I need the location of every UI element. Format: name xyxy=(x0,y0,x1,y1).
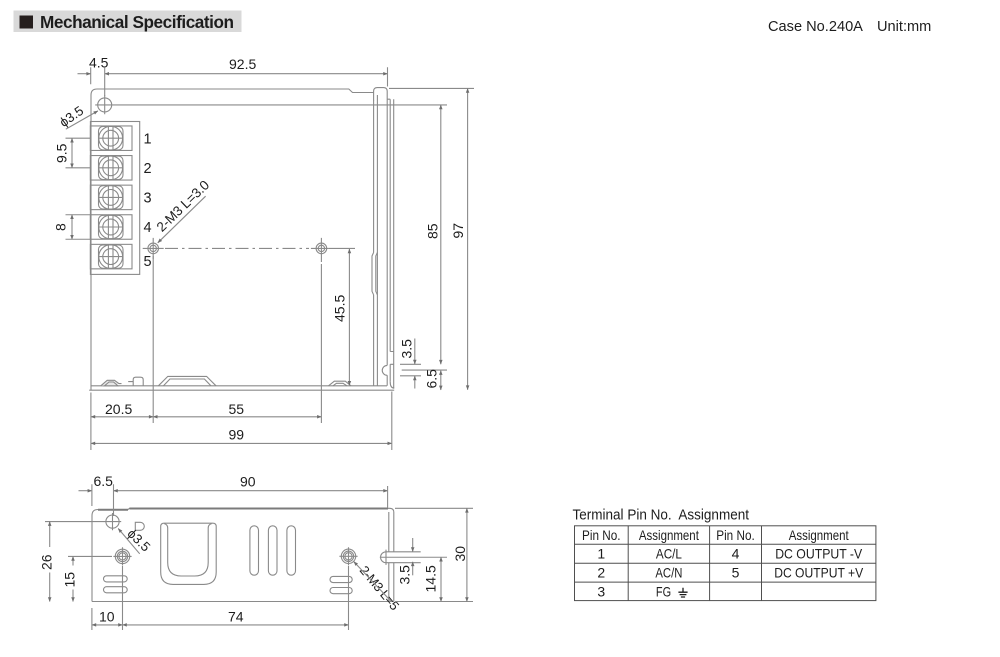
svg-text:14.5: 14.5 xyxy=(423,565,439,592)
svg-text:97: 97 xyxy=(450,223,466,239)
svg-text:26: 26 xyxy=(39,554,55,570)
svg-text:15: 15 xyxy=(61,572,77,588)
svg-text:FG: FG xyxy=(656,584,671,600)
svg-text:9.5: 9.5 xyxy=(54,143,70,163)
svg-text:1: 1 xyxy=(597,546,605,562)
svg-text:2-M3 L=5: 2-M3 L=5 xyxy=(357,563,403,613)
svg-text:45.5: 45.5 xyxy=(332,295,348,322)
svg-text:2: 2 xyxy=(144,161,152,177)
svg-text:1: 1 xyxy=(144,132,152,148)
svg-text:4: 4 xyxy=(732,546,740,562)
svg-text:3: 3 xyxy=(144,191,152,207)
svg-text:Pin No.: Pin No. xyxy=(582,527,621,543)
svg-text:DC OUTPUT +V: DC OUTPUT +V xyxy=(774,565,864,581)
svg-text:3: 3 xyxy=(597,584,605,600)
svg-text:Terminal Pin No. Assignment: Terminal Pin No. Assignment xyxy=(573,508,750,524)
svg-text:3.5: 3.5 xyxy=(399,339,415,359)
svg-text:3.5: 3.5 xyxy=(397,565,413,585)
svg-text:55: 55 xyxy=(229,401,245,417)
svg-text:AC/N: AC/N xyxy=(655,565,682,581)
svg-text:Assignment: Assignment xyxy=(789,527,849,543)
svg-text:5: 5 xyxy=(732,565,740,581)
svg-text:10: 10 xyxy=(99,609,115,625)
svg-text:4: 4 xyxy=(144,220,152,236)
svg-text:8: 8 xyxy=(53,223,69,231)
svg-text:2-M3 L=3.0: 2-M3 L=3.0 xyxy=(154,178,212,235)
svg-text:Unit:mm: Unit:mm xyxy=(877,19,931,35)
svg-text:DC OUTPUT -V: DC OUTPUT -V xyxy=(775,546,863,562)
svg-text:20.5: 20.5 xyxy=(105,401,132,417)
svg-text:Pin No.: Pin No. xyxy=(716,527,755,543)
svg-text:AC/L: AC/L xyxy=(656,546,682,562)
svg-text:2: 2 xyxy=(597,565,605,581)
svg-text:6.5: 6.5 xyxy=(94,473,114,489)
svg-text:74: 74 xyxy=(228,609,244,625)
svg-text:Assignment: Assignment xyxy=(639,527,699,543)
svg-text:30: 30 xyxy=(452,546,468,562)
svg-text:99: 99 xyxy=(229,427,245,443)
svg-text:6.5: 6.5 xyxy=(424,369,440,389)
svg-text:90: 90 xyxy=(240,474,256,490)
svg-text:Mechanical Specification: Mechanical Specification xyxy=(40,12,234,32)
svg-text:5: 5 xyxy=(144,254,152,270)
svg-text:85: 85 xyxy=(424,223,440,239)
svg-text:92.5: 92.5 xyxy=(229,56,256,72)
svg-text:Case No.240A: Case No.240A xyxy=(768,19,863,35)
svg-text:4.5: 4.5 xyxy=(89,55,109,71)
